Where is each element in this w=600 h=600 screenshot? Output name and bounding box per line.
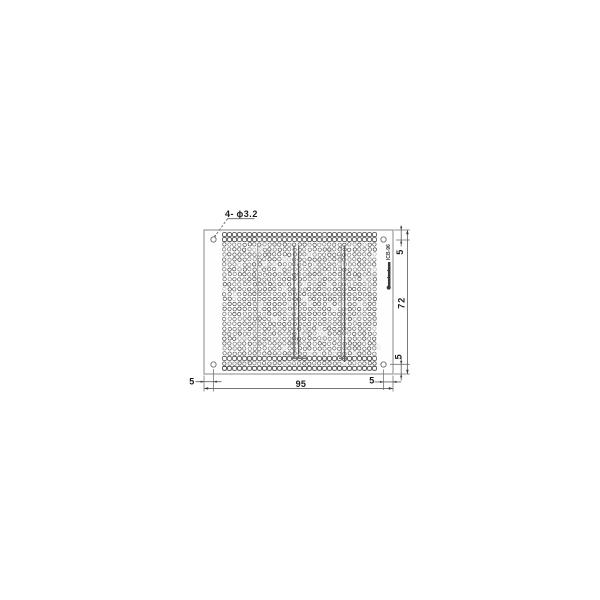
svg-text:ICB-96: ICB-96 xyxy=(386,244,392,260)
svg-text:5: 5 xyxy=(369,376,374,386)
svg-text:4- ϕ3.2: 4- ϕ3.2 xyxy=(225,209,258,219)
svg-text:5: 5 xyxy=(189,376,194,386)
svg-text:5: 5 xyxy=(394,354,404,359)
svg-text:72: 72 xyxy=(396,297,406,309)
svg-text:95: 95 xyxy=(296,379,307,389)
svg-text:5: 5 xyxy=(395,250,405,255)
